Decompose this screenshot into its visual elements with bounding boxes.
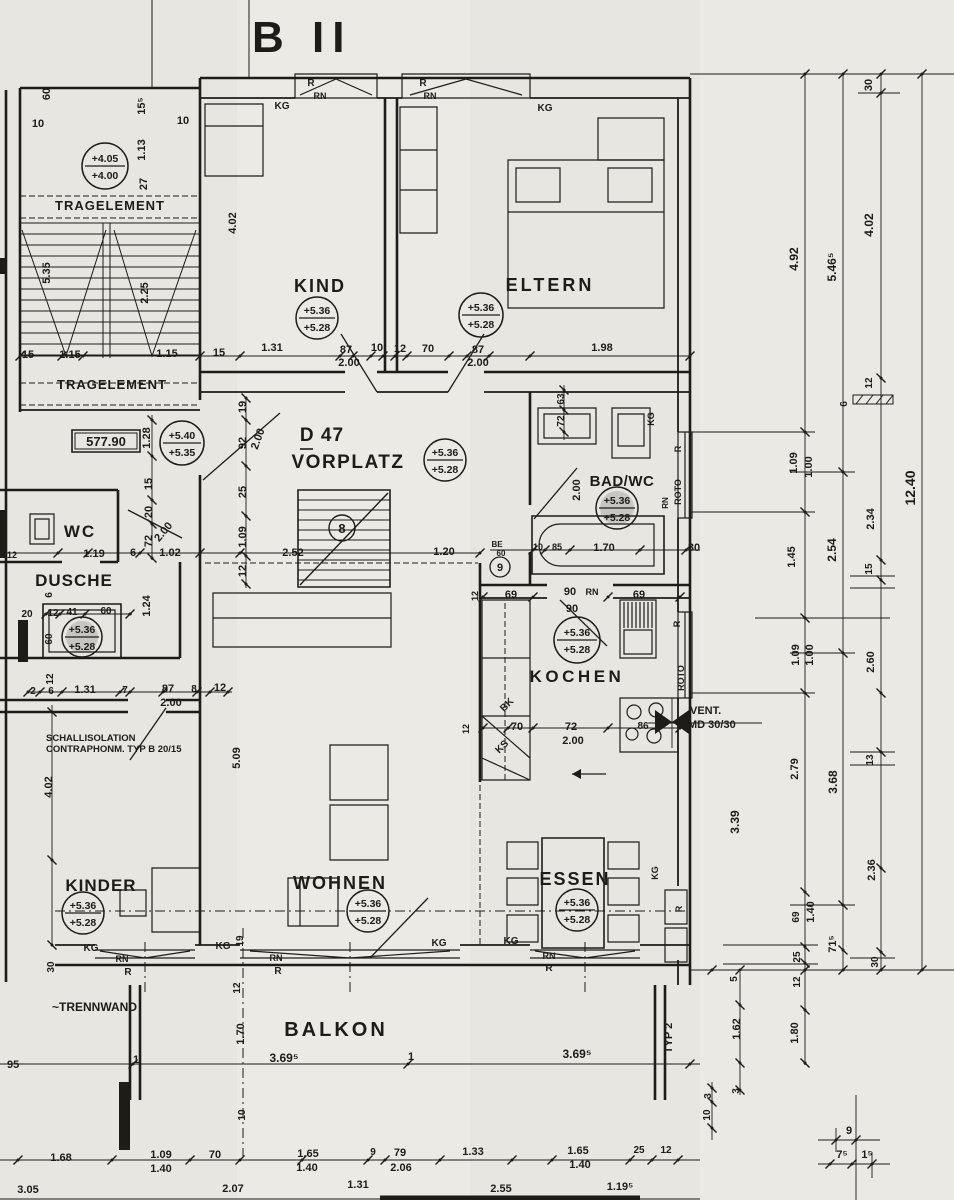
dimension-label: 60 [44, 633, 55, 645]
elevation-bottom: +5.28 [604, 512, 631, 524]
dimension-tick-dot [804, 73, 807, 76]
room-label: KINDER [65, 876, 136, 895]
dimension-tick-dot [209, 691, 212, 694]
dimension-tick-dot [162, 691, 165, 694]
dimension-tick-dot [711, 1127, 714, 1130]
dimension-label: 12 [864, 377, 875, 389]
note-label: TYP 2 [663, 1023, 675, 1053]
dimension-tick-dot [511, 1159, 514, 1162]
dimension-tick-dot [689, 1063, 692, 1066]
dimension-tick-dot [151, 455, 154, 458]
dimension-label: 3.39 [728, 810, 742, 834]
elevation-bottom: +5.28 [468, 319, 495, 331]
dimension-tick-dot [689, 355, 692, 358]
dimension-label: 25 [792, 951, 803, 963]
dimension-tick-dot [61, 691, 64, 694]
dimension-tick-dot [479, 552, 482, 555]
dimension-tick-dot [880, 969, 883, 972]
dimension-label: 2 [30, 686, 36, 697]
dimension-label: 2.25 [139, 282, 151, 303]
dimension-label: 1.02 [159, 547, 180, 559]
dimension-label: 2.36 [866, 859, 878, 880]
dimension-label: 12 [237, 565, 249, 577]
dimension-label: 1.45 [786, 546, 798, 567]
dimension-label: 1.40 [150, 1163, 171, 1175]
dimension-label: 1.20 [433, 546, 454, 558]
dimension-tick-dot [82, 355, 85, 358]
elevation-bottom: +5.28 [564, 644, 591, 656]
fitting-label: R [124, 967, 132, 978]
dimension-tick-dot [370, 355, 373, 358]
dimension-label: 25 [237, 486, 249, 498]
dimension-tick-dot [804, 692, 807, 695]
dimension-tick-dot [851, 1163, 854, 1166]
dimension-tick-dot [199, 552, 202, 555]
dimension-label: BK [498, 696, 517, 715]
note-label: TRAGELEMENT [55, 198, 165, 213]
dimension-tick-dot [829, 1163, 832, 1166]
dimension-label: 5 [729, 976, 740, 982]
dimension-label: 10 [237, 1109, 248, 1121]
elevation-marker: +5.36+5.28 [459, 293, 503, 337]
dimension-label: 1⁵ [861, 1149, 872, 1161]
floorplan-sheet: 577.90 8 9 B II 10106015⁵1.13274.025.352… [0, 0, 954, 1200]
dimension-label: 69 [791, 911, 802, 923]
elevation-top: +5.36 [432, 447, 459, 459]
dimension-tick-dot [59, 613, 62, 616]
dimension-tick-dot [51, 711, 54, 714]
dimension-label: 95 [7, 1059, 19, 1071]
dimension-tick-dot [842, 969, 845, 972]
dimension-label: 1.15 [156, 348, 177, 360]
dimension-tick-dot [19, 355, 22, 358]
fitting-label: RN [424, 91, 437, 101]
dimension-tick-dot [39, 691, 42, 694]
dimension-label: 12.40 [902, 470, 918, 505]
dimension-label: 2.00 [571, 479, 583, 500]
dimension-tick-dot [245, 397, 248, 400]
fitting-label: ROTO [676, 665, 686, 691]
fitting-label: KG [84, 943, 99, 954]
dimension-label: 10 [32, 118, 44, 130]
dimension-label: 2.34 [865, 507, 877, 529]
dimension-tick-dot [711, 1101, 714, 1104]
room-label: ELTERN [506, 275, 595, 295]
dimension-tick-dot [739, 1004, 742, 1007]
dimension-tick-dot [129, 691, 132, 694]
dimension-tick-dot [394, 355, 397, 358]
fitting-label: KG [538, 103, 553, 114]
dimension-label: 87 [472, 344, 484, 356]
elevation-top: +5.36 [564, 897, 591, 909]
dimension-label: 6 [130, 547, 136, 559]
dimension-tick-dot [84, 613, 87, 616]
dimension-tick-dot [804, 617, 807, 620]
dimension-label: 12 [7, 550, 17, 560]
dimension-label: 1.70 [593, 542, 614, 554]
dimension-tick-dot [352, 355, 355, 358]
dimension-label: 1.28 [141, 427, 153, 448]
dimension-label: 30 [688, 542, 700, 554]
dimension-tick-dot [804, 511, 807, 514]
dimension-tick-dot [711, 969, 714, 972]
dimension-label: 71⁵ [827, 935, 839, 952]
dimension-tick-dot [842, 904, 845, 907]
fitting-label: RN [586, 587, 599, 597]
dimension-label: 30 [863, 79, 875, 91]
dimension-label: 4.02 [862, 213, 876, 237]
dimension-label: 13 [865, 754, 876, 766]
dimension-label: 2.52 [282, 547, 303, 559]
fitting-label: KG [650, 866, 660, 880]
door-number-value: 9 [497, 562, 503, 574]
elevation-bottom: +5.28 [564, 914, 591, 926]
dimension-label: 10 [177, 115, 189, 127]
dimension-tick-dot [245, 419, 248, 422]
dimension-label: 2.60 [865, 651, 877, 672]
dimension-tick-dot [239, 1159, 242, 1162]
fitting-label: KG [216, 941, 231, 952]
dimension-tick-dot [880, 692, 883, 695]
dimension-label: 15 [213, 347, 225, 359]
dimension-tick-dot [151, 557, 154, 560]
room-label: KIND [294, 276, 346, 296]
dimension-label: 1.62 [731, 1018, 743, 1039]
elevation-top: +5.36 [69, 624, 96, 636]
dimension-label: 3.69⁵ [563, 1047, 592, 1061]
dimension-tick-dot [629, 1159, 632, 1162]
dimension-label: 12 [660, 1145, 672, 1156]
fitting-label: R [673, 445, 683, 452]
dimension-label: 1.09 [788, 452, 800, 473]
fitting-label: KG [504, 936, 519, 947]
dimension-tick-dot [199, 355, 202, 358]
level-value: 577.90 [86, 434, 126, 449]
dimension-label: 70 [422, 343, 434, 355]
elevation-top: +4.05 [92, 153, 119, 165]
fitting-label: ROTO [673, 479, 683, 505]
dimension-label: 79 [394, 1147, 406, 1159]
note-label: SCHALLISOLATION [46, 733, 136, 744]
dimension-label: 15⁵ [136, 97, 148, 114]
floorplan-drawing: 577.90 8 9 B II 10106015⁵1.13274.025.352… [0, 0, 954, 1200]
elevation-top: +5.36 [355, 898, 382, 910]
sheet-title: B II [252, 13, 352, 62]
fitting-label: R [545, 963, 553, 974]
dimension-tick-dot [921, 73, 924, 76]
stair-number-value: 8 [338, 521, 345, 536]
elevation-bottom: +5.28 [432, 464, 459, 476]
dimension-tick-dot [739, 969, 742, 972]
dimension-tick-dot [57, 552, 60, 555]
reference-lines [152, 0, 249, 88]
dimension-label: 1.24 [141, 594, 153, 616]
dimension-label: 25 [633, 1145, 645, 1156]
dimension-tick-dot [439, 1159, 442, 1162]
dimension-tick-dot [245, 465, 248, 468]
dimension-tick-dot [129, 613, 132, 616]
elevation-top: +5.36 [468, 302, 495, 314]
dimension-tick-dot [507, 727, 510, 730]
dimension-tick-dot [367, 1159, 370, 1162]
elevation-top: +5.36 [604, 495, 631, 507]
dimension-label: 15 [864, 563, 875, 575]
dimension-tick-dot [119, 691, 122, 694]
elevation-top: +5.36 [304, 305, 331, 317]
fitting-label: RN [661, 497, 670, 509]
room-label: KOCHEN [530, 667, 625, 686]
dimension-label: 3.68 [826, 770, 840, 794]
dimension-tick-dot [189, 1159, 192, 1162]
fitting-label: KG [646, 412, 656, 426]
dimension-tick-dot [87, 552, 90, 555]
dimension-tick-dot [245, 555, 248, 558]
dimension-label: 1.40 [569, 1159, 590, 1171]
dimension-tick-dot [563, 389, 566, 392]
elevation-bottom: +5.28 [304, 322, 331, 334]
dimension-tick-dot [711, 1087, 714, 1090]
dimension-label: 1.98 [591, 342, 612, 354]
dimension-tick-dot [239, 355, 242, 358]
dimension-tick-dot [406, 355, 409, 358]
dimension-label: 1.13 [136, 139, 148, 160]
dimension-tick-dot [651, 1159, 654, 1162]
dimension-tick-dot [339, 355, 342, 358]
elevation-bottom: +5.28 [70, 917, 97, 929]
dimension-label: 12 [461, 724, 471, 734]
dimension-tick-dot [227, 691, 230, 694]
dimension-tick-dot [804, 946, 807, 949]
dimension-label: 5.35 [41, 262, 53, 283]
dimension-label: 20 [21, 609, 33, 620]
dimension-label: 30 [46, 961, 57, 973]
elevation-bottom: +5.28 [355, 915, 382, 927]
note-label: TRAGELEMENT [57, 377, 167, 392]
dimension-label: 1.31 [261, 342, 282, 354]
note-label: CONTRAPHONM. TYP B 20/15 [46, 744, 182, 755]
note-label: VENT. [690, 705, 721, 717]
dimension-label: 92 [237, 437, 249, 449]
dimension-label: 1.00 [804, 644, 816, 665]
dimension-label: 15 [143, 478, 155, 490]
dimension-label: 1.19⁵ [607, 1181, 634, 1193]
dimension-label: 1.40 [296, 1162, 317, 1174]
dimension-label: 90 [566, 603, 578, 615]
dimension-label: 69 [505, 589, 517, 601]
dimension-label: 10 [533, 542, 543, 552]
dimension-tick-dot [804, 431, 807, 434]
dimension-tick-dot [482, 727, 485, 730]
dimension-label: 12 [45, 673, 56, 685]
dimension-tick-dot [685, 549, 688, 552]
dimension-label: 27 [138, 178, 150, 190]
fitting-label: RN [270, 953, 283, 963]
dimension-label: 1.65 [567, 1145, 588, 1157]
dimension-tick-dot [17, 1159, 20, 1162]
dimension-tick-dot [51, 859, 54, 862]
dimension-tick-dot [842, 652, 845, 655]
dimension-tick-dot [384, 1159, 387, 1162]
elevation-bottom: +5.35 [169, 447, 196, 459]
dimension-tick-dot [880, 951, 883, 954]
dimension-tick-dot [842, 73, 845, 76]
dimension-label: 1.40 [805, 901, 817, 922]
elevation-marker: +4.05+4.00 [82, 143, 128, 189]
fitting-label: R [674, 905, 684, 912]
dimension-label: 12 [232, 982, 243, 994]
dimension-label: 1.80 [789, 1022, 801, 1043]
dimension-label: 41 [66, 607, 78, 618]
dimension-label: 5.46⁵ [825, 253, 839, 282]
dimension-label: 6 [839, 401, 850, 407]
dimension-label: 12 [470, 591, 480, 601]
dimension-label: 10 [702, 1109, 713, 1121]
dimension-label: 69 [633, 589, 645, 601]
dimension-tick-dot [804, 1062, 807, 1065]
room-label: VORPLATZ [292, 452, 405, 473]
dimension-tick-dot [382, 355, 385, 358]
dimension-tick-dot [448, 355, 451, 358]
dimension-tick-dot [677, 1159, 680, 1162]
dimension-label: 1.33 [462, 1146, 483, 1158]
elevation-marker: +5.36+5.28 [596, 487, 638, 529]
dimension-label: 2.79 [789, 758, 801, 779]
dimension-tick-dot [679, 596, 682, 599]
dimension-tick-dot [61, 355, 64, 358]
dimension-label: 2.54 [825, 538, 839, 562]
dimension-tick-dot [880, 579, 883, 582]
elevation-top: +5.36 [70, 900, 97, 912]
dimension-label: 4.92 [787, 247, 801, 271]
dimension-tick-dot [804, 962, 807, 965]
dimension-label: 63 [556, 393, 567, 405]
fitting-label: R [672, 620, 682, 627]
dimension-label: 2.00 [562, 735, 583, 747]
dimension-label: 30 [870, 956, 881, 968]
dimension-tick-dot [488, 355, 491, 358]
dimension-label: 60 [41, 88, 53, 100]
dimension-label: 2.00 [160, 697, 181, 709]
dimension-label: 90 [564, 586, 576, 598]
dimension-tick-dot [151, 499, 154, 502]
dimension-tick-dot [639, 549, 642, 552]
elevation-top: +5.36 [564, 627, 591, 639]
dimension-label: BE [491, 540, 503, 549]
dimension-label: 1.31 [347, 1179, 368, 1191]
dimension-tick-dot [569, 549, 572, 552]
dimension-tick-dot [804, 969, 807, 972]
note-label: ~TRENNWAND [52, 1000, 137, 1014]
dimension-label: 1.09 [237, 526, 249, 547]
fitting-label: R [307, 78, 315, 89]
dimension-label: 19 [237, 401, 249, 413]
elevation-marker: +5.40+5.35 [160, 421, 204, 465]
dimension-tick-dot [563, 431, 566, 434]
room-label: ESSEN [539, 869, 610, 889]
dimension-label: 4.02 [227, 212, 239, 233]
dimension-label: 15 [22, 349, 34, 361]
dimension-label: 1.09 [150, 1149, 171, 1161]
dimension-label: 19 [235, 935, 246, 947]
dimension-tick-dot [196, 691, 199, 694]
dimension-label: 4.02 [43, 776, 55, 797]
dimension-tick-dot [607, 727, 610, 730]
dimension-label: 60 [100, 606, 112, 617]
dimension-tick-dot [111, 1159, 114, 1162]
dimension-tick-dot [45, 613, 48, 616]
dimension-tick-dot [132, 1063, 135, 1066]
dimension-tick-dot [855, 1139, 858, 1142]
room-label: BALKON [284, 1019, 388, 1041]
dimension-tick-dot [532, 549, 535, 552]
note-label: MD 30/30 [688, 719, 736, 731]
room-label: WC [64, 522, 96, 541]
elevation-marker: +5.36+5.28 [62, 892, 104, 934]
elevation-marker: +5.36+5.28 [62, 617, 102, 657]
dimension-tick-dot [151, 419, 154, 422]
dimension-label: 70 [209, 1149, 221, 1161]
dimension-tick-dot [804, 891, 807, 894]
room-label: D 47 [300, 425, 344, 446]
fitting-label: R [274, 966, 282, 977]
dimension-label: 60 [497, 549, 506, 558]
dimension-tick-dot [880, 92, 883, 95]
dimension-label: 20 [143, 506, 155, 518]
fitting-label: RN [543, 951, 556, 961]
dimension-label: 1.00 [803, 456, 815, 477]
fitting-label: RN [314, 91, 327, 101]
fitting-label: RN [116, 954, 129, 964]
dimension-label: 72 [556, 415, 567, 427]
dimension-tick-dot [880, 73, 883, 76]
dimension-label: 1.65 [297, 1148, 318, 1160]
dimension-tick-dot [871, 1163, 874, 1166]
fitting-label: R [419, 78, 427, 89]
dimension-label: 72 [565, 721, 577, 733]
elevation-bottom: +4.00 [92, 170, 119, 182]
dimension-tick-dot [544, 549, 547, 552]
dimension-tick-dot [880, 867, 883, 870]
dimension-label: 2.00 [338, 357, 359, 369]
dimension-tick-dot [607, 596, 610, 599]
dimension-label: 2.06 [390, 1162, 411, 1174]
dimension-tick-dot [551, 1159, 554, 1162]
elevation-marker: +5.36+5.28 [556, 889, 598, 931]
dimension-tick-dot [842, 949, 845, 952]
dimension-tick-dot [739, 1062, 742, 1065]
dimension-tick-dot [27, 691, 30, 694]
dimension-label: 9 [846, 1125, 852, 1137]
dimension-label: 70 [511, 721, 523, 733]
dimension-tick-dot [880, 377, 883, 380]
fitting-label: KG [432, 938, 447, 949]
dimension-label: 3.69⁵ [270, 1051, 299, 1065]
dimension-label: 10 [371, 342, 383, 354]
dimension-label: 1.70 [235, 1023, 247, 1044]
dimension-tick-dot [804, 1009, 807, 1012]
dimension-label: 86 [637, 721, 649, 732]
dimension-tick-dot [51, 944, 54, 947]
dimension-tick-dot [529, 355, 532, 358]
dimension-label: KS [493, 738, 511, 756]
dimension-label: 12 [214, 682, 226, 694]
dimension-tick-dot [842, 471, 845, 474]
elevation-top: +5.40 [169, 430, 196, 442]
dimension-label: 1.09 [790, 644, 802, 665]
dimension-tick-dot [532, 727, 535, 730]
dimension-label: 85 [552, 542, 562, 552]
dimension-label: 7⁵ [836, 1149, 847, 1161]
